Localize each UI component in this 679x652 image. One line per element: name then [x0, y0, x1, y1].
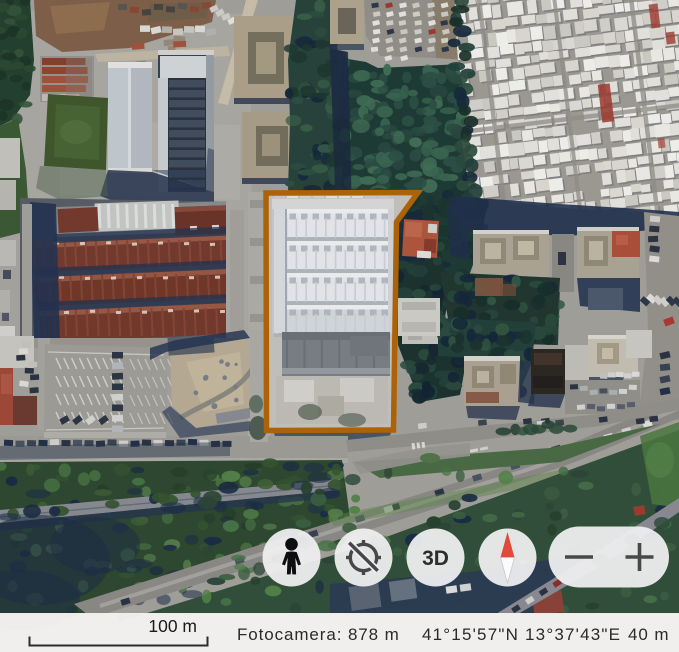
svg-text:100 m: 100 m	[148, 616, 197, 636]
svg-text:40 m: 40 m	[628, 625, 669, 644]
svg-text:41°15'57"N 13°37'43"E: 41°15'57"N 13°37'43"E	[422, 625, 621, 644]
svg-text:3D: 3D	[422, 547, 449, 570]
svg-text:Fotocamera: 878 m: Fotocamera: 878 m	[237, 625, 400, 644]
